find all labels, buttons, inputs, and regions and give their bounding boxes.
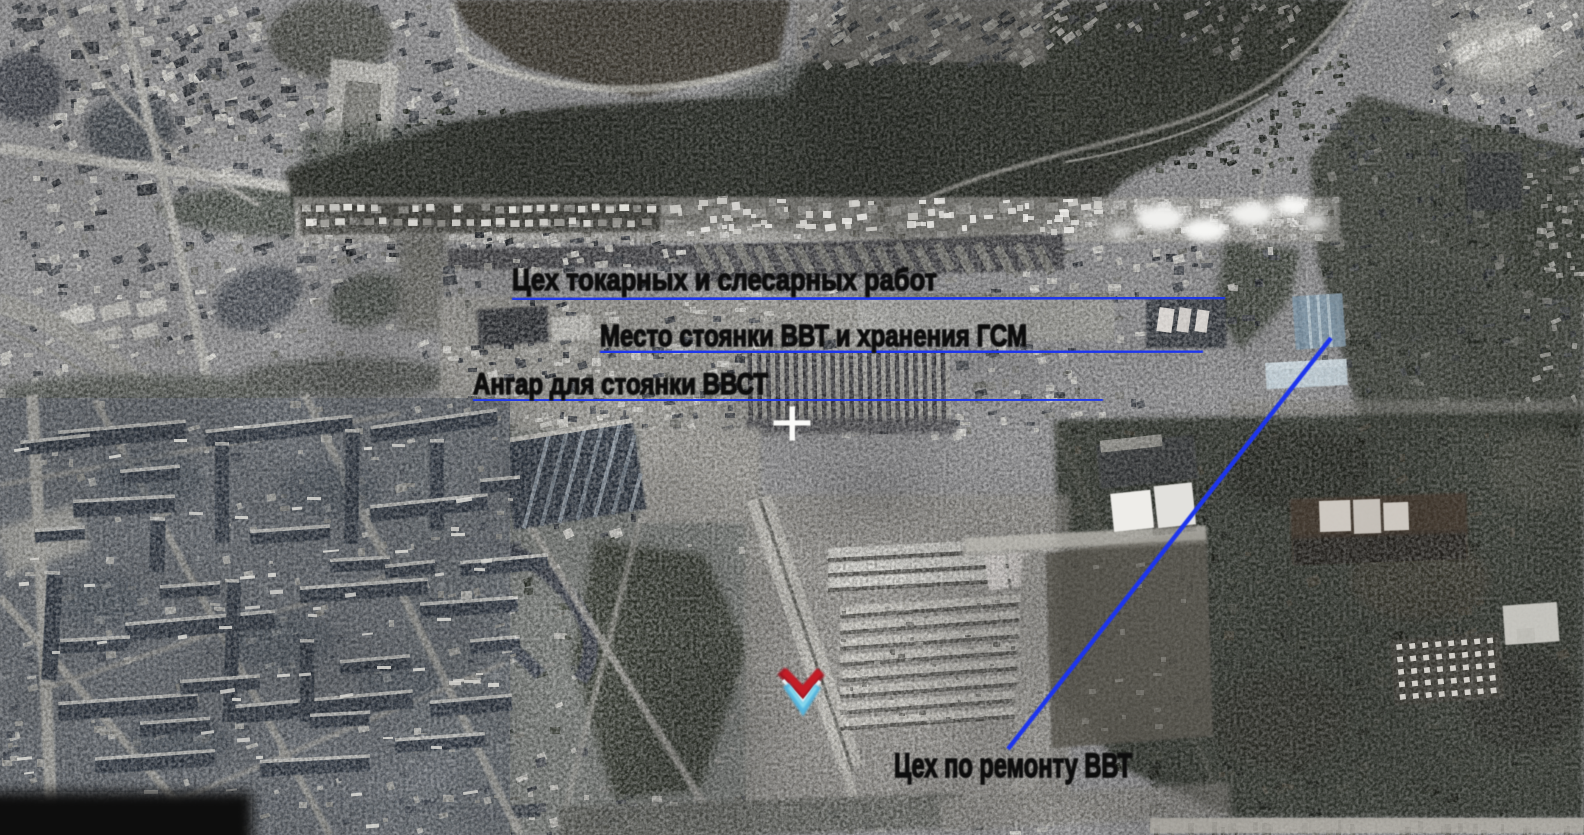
svg-text:Место стоянки ВВТ и хранения Г: Место стоянки ВВТ и хранения ГСМ bbox=[600, 318, 1027, 353]
svg-text:Цех по ремонту ВВТ: Цех по ремонту ВВТ bbox=[894, 747, 1132, 785]
svg-text:Цех токарных и слесарных работ: Цех токарных и слесарных работ bbox=[512, 262, 937, 297]
svg-text:Ангар для стоянки ВВСТ: Ангар для стоянки ВВСТ bbox=[473, 368, 768, 401]
